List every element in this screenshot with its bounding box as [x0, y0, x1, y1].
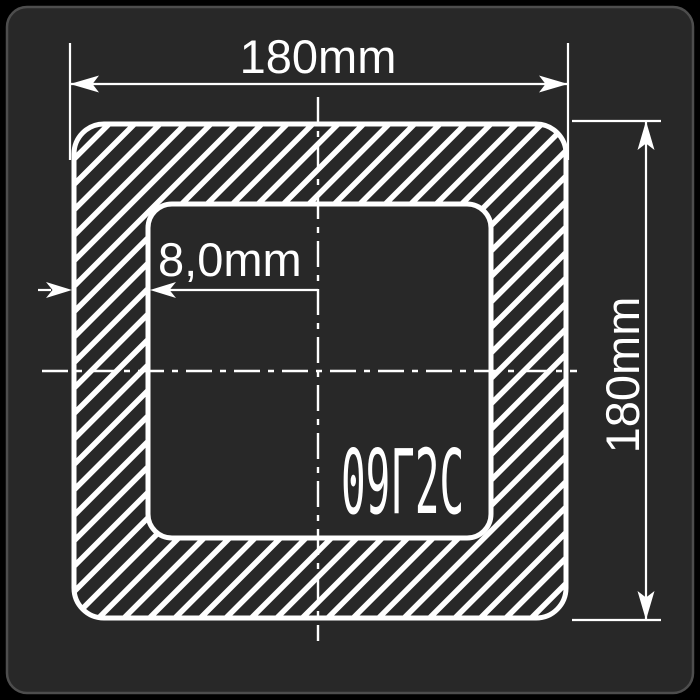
drawing-canvas: 180mm 180mm 8,0mm 09Г2С [0, 0, 700, 700]
steel-grade-stamp: 09Г2С [341, 432, 464, 535]
outer-width-label: 180mm [240, 30, 397, 83]
technical-drawing: 180mm 180mm 8,0mm 09Г2С [0, 0, 700, 700]
outer-height-label: 180mm [596, 297, 649, 454]
wall-thickness-label: 8,0mm [158, 233, 302, 286]
